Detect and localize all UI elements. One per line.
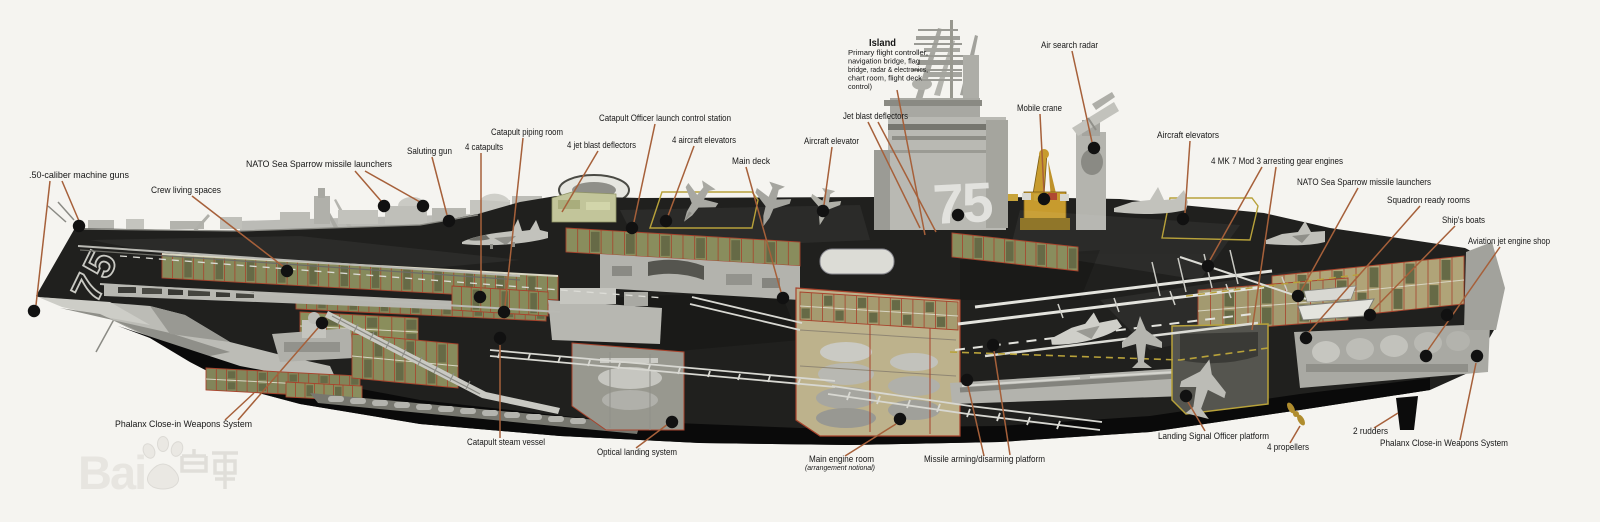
svg-text:.50-caliber machine guns: .50-caliber machine guns xyxy=(29,170,129,181)
svg-text:Aviation jet engine shop: Aviation jet engine shop xyxy=(1468,236,1550,247)
svg-text:Landing Signal Officer platfor: Landing Signal Officer platform xyxy=(1158,431,1269,442)
svg-text:4 jet blast deflectors: 4 jet blast deflectors xyxy=(567,140,636,151)
svg-text:2 rudders: 2 rudders xyxy=(1353,426,1388,437)
svg-text:Optical landing system: Optical landing system xyxy=(597,447,677,458)
svg-text:Catapult Officer launch contro: Catapult Officer launch control station xyxy=(599,113,731,124)
svg-text:Phalanx Close-in Weapons Syste: Phalanx Close-in Weapons System xyxy=(1380,438,1508,449)
svg-text:Phalanx Close-in Weapons Syste: Phalanx Close-in Weapons System xyxy=(115,419,252,430)
svg-text:4 propellers: 4 propellers xyxy=(1267,442,1309,453)
svg-text:Squadron ready rooms: Squadron ready rooms xyxy=(1387,195,1470,206)
svg-text:4 catapults: 4 catapults xyxy=(465,142,503,153)
svg-text:Ship's boats: Ship's boats xyxy=(1442,215,1485,226)
svg-text:Main deck: Main deck xyxy=(732,156,770,167)
svg-text:NATO Sea Sparrow missile launc: NATO Sea Sparrow missile launchers xyxy=(246,159,392,170)
svg-text:4 MK 7 Mod 3 arresting gear en: 4 MK 7 Mod 3 arresting gear engines xyxy=(1211,156,1343,167)
svg-text:Missile arming/disarming platf: Missile arming/disarming platform xyxy=(924,454,1045,465)
svg-text:Jet blast deflectors: Jet blast deflectors xyxy=(843,111,908,122)
svg-text:Crew living spaces: Crew living spaces xyxy=(151,185,221,196)
svg-text:Saluting gun: Saluting gun xyxy=(407,146,452,157)
svg-text:Air search radar: Air search radar xyxy=(1041,40,1098,51)
svg-text:Catapult piping room: Catapult piping room xyxy=(491,127,563,138)
svg-text:4 aircraft elevators: 4 aircraft elevators xyxy=(672,135,736,146)
svg-text:control): control) xyxy=(848,82,872,91)
svg-text:Catapult steam vessel: Catapult steam vessel xyxy=(467,437,545,448)
svg-text:Aircraft elevators: Aircraft elevators xyxy=(1157,130,1219,141)
svg-text:75: 75 xyxy=(931,170,993,236)
svg-text:Mobile crane: Mobile crane xyxy=(1017,103,1062,114)
svg-text:(arrangement notional): (arrangement notional) xyxy=(805,463,875,472)
svg-text:NATO Sea Sparrow missile launc: NATO Sea Sparrow missile launchers xyxy=(1297,177,1431,188)
svg-text:Bai: Bai xyxy=(78,446,145,499)
svg-text:Aircraft elevator: Aircraft elevator xyxy=(804,136,859,147)
